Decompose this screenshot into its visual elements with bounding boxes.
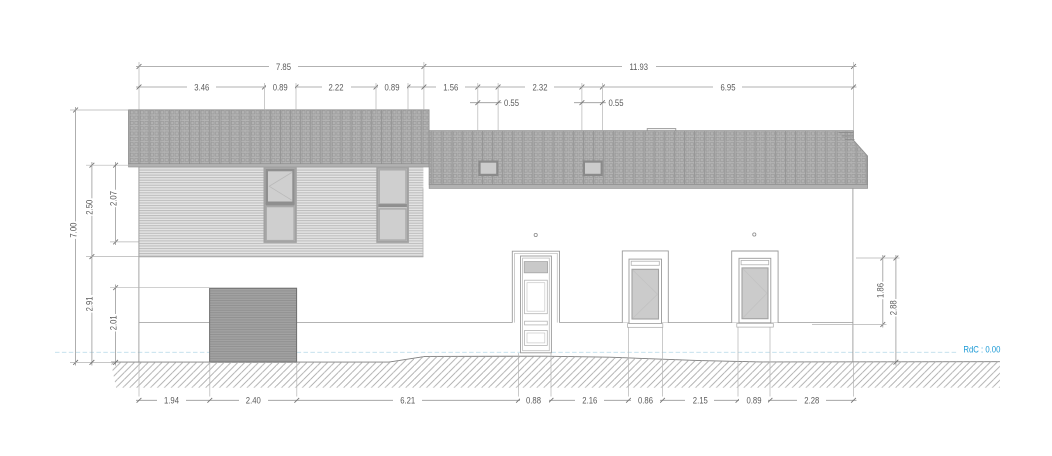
svg-text:0.55: 0.55 xyxy=(504,98,519,108)
svg-text:2.40: 2.40 xyxy=(246,396,261,406)
svg-text:2.50: 2.50 xyxy=(85,200,95,215)
svg-text:0.88: 0.88 xyxy=(526,396,541,406)
svg-text:2.16: 2.16 xyxy=(582,396,597,406)
svg-text:3.46: 3.46 xyxy=(194,82,209,92)
svg-text:2.32: 2.32 xyxy=(533,82,548,92)
svg-text:1.86: 1.86 xyxy=(876,283,886,298)
svg-text:6.21: 6.21 xyxy=(400,396,415,406)
svg-text:2.22: 2.22 xyxy=(329,82,344,92)
svg-text:2.91: 2.91 xyxy=(85,296,95,311)
svg-text:2.88: 2.88 xyxy=(889,300,899,315)
svg-text:0.55: 0.55 xyxy=(609,98,624,108)
svg-text:0.89: 0.89 xyxy=(385,82,400,92)
svg-text:2.07: 2.07 xyxy=(108,191,118,206)
svg-text:0.86: 0.86 xyxy=(638,396,653,406)
svg-text:7.85: 7.85 xyxy=(276,62,291,72)
svg-text:6.95: 6.95 xyxy=(721,82,736,92)
svg-text:2.15: 2.15 xyxy=(693,396,708,406)
svg-text:1.94: 1.94 xyxy=(164,396,179,406)
svg-text:2.28: 2.28 xyxy=(804,396,819,406)
svg-text:11.93: 11.93 xyxy=(629,62,648,72)
svg-text:RdC : 0.00: RdC : 0.00 xyxy=(963,345,1000,356)
svg-text:2.01: 2.01 xyxy=(108,315,118,330)
svg-text:0.89: 0.89 xyxy=(747,396,762,406)
svg-text:0.89: 0.89 xyxy=(273,82,288,92)
svg-text:1.56: 1.56 xyxy=(443,82,458,92)
svg-text:7.00: 7.00 xyxy=(68,223,78,238)
